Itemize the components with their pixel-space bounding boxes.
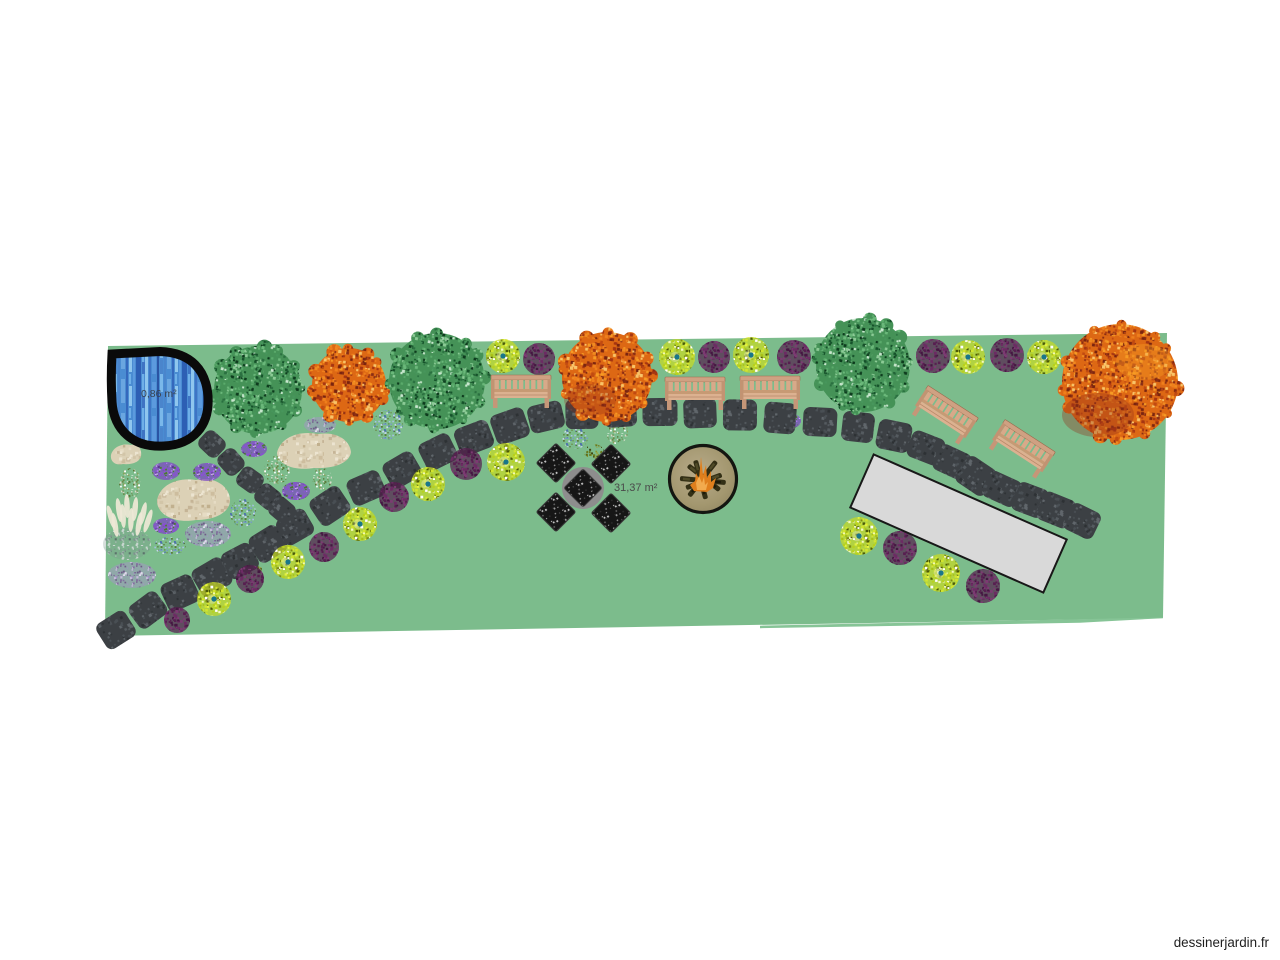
svg-text:dessinerjardin.fr: dessinerjardin.fr	[1174, 935, 1270, 950]
svg-text:0,86 m²: 0,86 m²	[141, 388, 177, 400]
svg-text:31,37 m²: 31,37 m²	[614, 482, 658, 494]
